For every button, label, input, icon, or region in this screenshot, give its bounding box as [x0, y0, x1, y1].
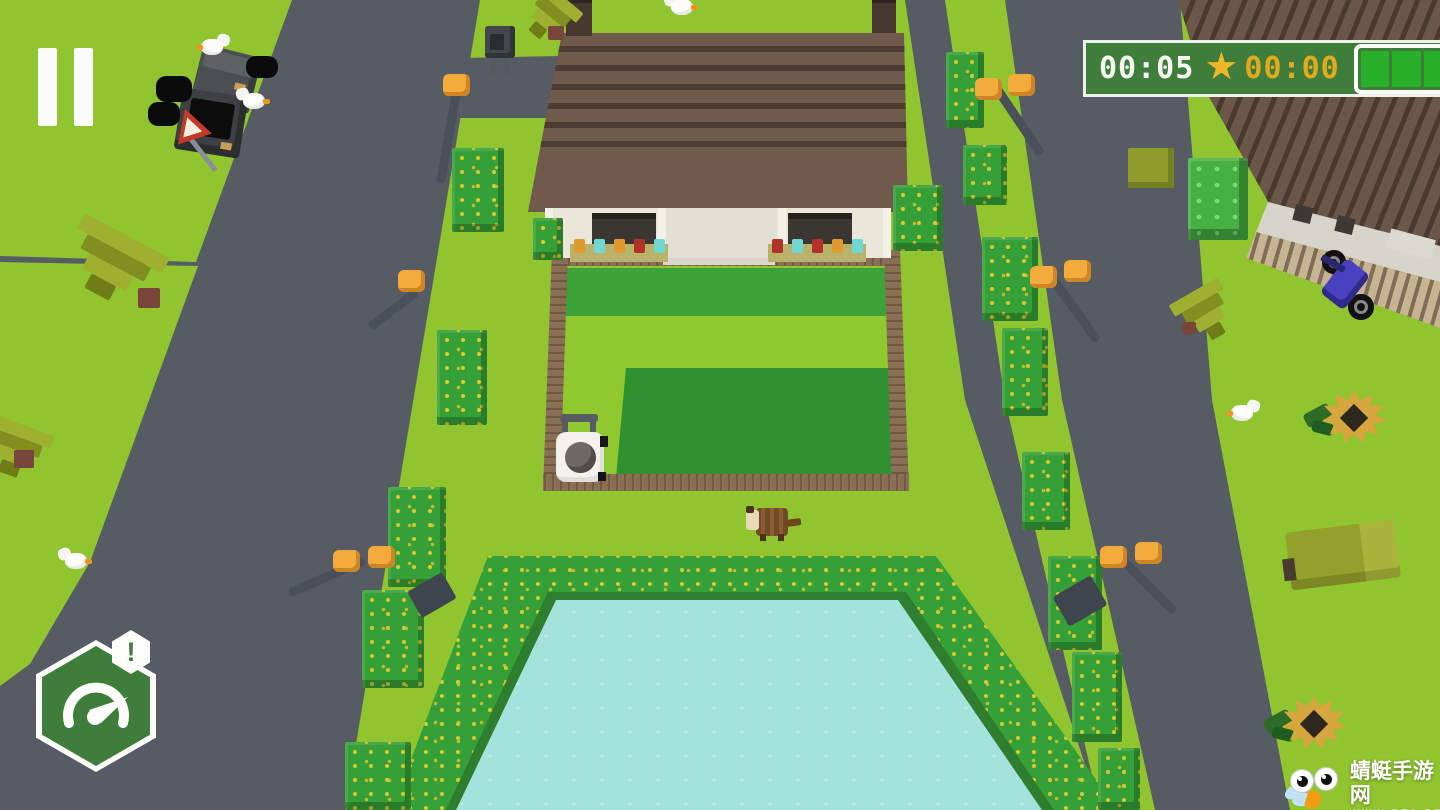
flower-cube: [792, 239, 803, 253]
olive-bush: [1128, 148, 1174, 188]
hedge: [1022, 452, 1070, 530]
gauge-icon: [56, 670, 136, 742]
watermark-title: 蜻蜓手游网: [1350, 760, 1440, 808]
hedge: [388, 487, 446, 587]
sunflower: [1322, 390, 1386, 446]
street-lamp-head: [443, 74, 470, 96]
speed-gauge-badge[interactable]: !: [36, 640, 156, 772]
flower-cube: [772, 239, 783, 253]
flower-cube: [832, 239, 843, 253]
hud-panel: 00:05 ★ 00:00: [1083, 40, 1440, 97]
chicken: [196, 34, 230, 60]
hedge: [963, 145, 1007, 205]
dragonfly-logo: [1288, 767, 1342, 810]
flower-cube: [812, 239, 823, 253]
hedge: [345, 742, 411, 810]
pine-trunk: [548, 26, 564, 40]
dog: [744, 502, 800, 546]
chicken: [1226, 400, 1260, 426]
shadow-blob: [156, 76, 192, 102]
motorcycle: [1316, 246, 1380, 326]
chimney-right: [872, 0, 896, 33]
hedge: [452, 148, 504, 232]
pine-trunk: [138, 288, 160, 308]
pine-trunk: [14, 450, 34, 468]
game-scene: [0, 0, 1440, 810]
olive-log-bush: [1285, 520, 1401, 591]
mailbox: [485, 26, 517, 78]
street-lamp-head: [1064, 260, 1091, 282]
flower-cube: [574, 239, 585, 253]
game-viewport[interactable]: 00:05 ★ 00:00 ! 蜻蜓手游: [0, 0, 1440, 810]
house-porch: [663, 208, 777, 258]
street-lamp-head: [1100, 546, 1127, 568]
street-lamp-head: [333, 550, 360, 572]
bright-bush: [1188, 158, 1248, 240]
chicken: [664, 0, 698, 20]
hedge: [1002, 328, 1048, 416]
flower-cube: [614, 239, 625, 253]
star-timer-value: 00:00: [1244, 54, 1339, 84]
shadow-blob: [148, 102, 180, 126]
street-lamp-head: [975, 78, 1002, 100]
flower-cube: [654, 239, 665, 253]
watermark: 蜻蜓手游网 WWW.QT6.COM: [1288, 760, 1440, 810]
street-lamp-head: [398, 270, 425, 292]
lawn-mower-player: [554, 414, 610, 484]
street-lamp-head: [1030, 266, 1057, 288]
alert-mark: !: [127, 637, 136, 668]
porch-pillar: [883, 208, 891, 258]
star-icon: ★: [1204, 48, 1238, 86]
battery-icon: [1354, 44, 1440, 94]
hedge: [533, 218, 563, 260]
hedge: [437, 330, 487, 425]
flower-planter-left: [570, 244, 668, 262]
pine-trunk: [1182, 322, 1196, 334]
sunflower: [1282, 696, 1346, 752]
street-lamp-head: [368, 546, 395, 568]
flower-cube: [594, 239, 605, 253]
warning-sign: [172, 108, 232, 178]
flower-planter-right: [768, 244, 866, 262]
hedge: [1098, 748, 1140, 810]
shadow-blob: [246, 56, 278, 78]
street-lamp-head: [1135, 542, 1162, 564]
pause-button[interactable]: [30, 40, 102, 132]
hedge: [893, 185, 943, 251]
flower-cube: [634, 239, 645, 253]
chicken: [58, 548, 92, 574]
timer-value: 00:05: [1099, 54, 1194, 84]
hedge: [1072, 652, 1122, 742]
chicken: [236, 88, 270, 114]
street-lamp-head: [1008, 74, 1035, 96]
flower-cube: [852, 239, 863, 253]
